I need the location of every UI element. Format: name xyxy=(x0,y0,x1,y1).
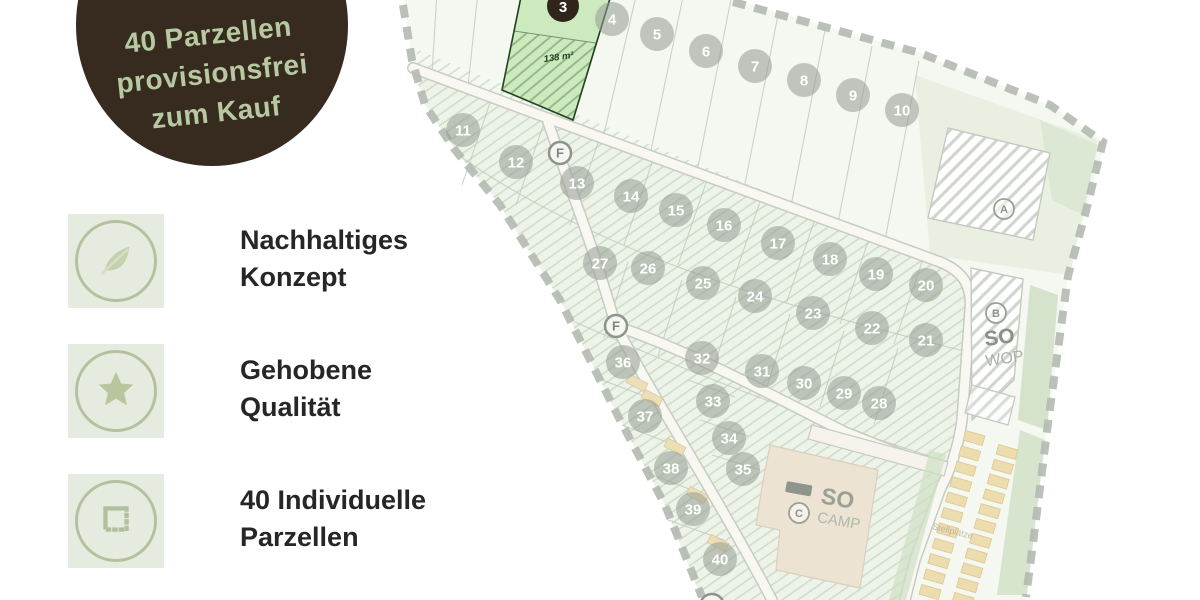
parcel-number[interactable]: 18 xyxy=(813,242,847,276)
parcel-number[interactable]: 29 xyxy=(827,376,861,410)
svg-text:36: 36 xyxy=(615,355,632,372)
svg-text:29: 29 xyxy=(836,386,853,403)
parcel-number[interactable]: 21 xyxy=(909,323,943,357)
parcel-number[interactable]: 35 xyxy=(726,452,760,486)
svg-text:SO: SO xyxy=(983,324,1016,351)
svg-text:13: 13 xyxy=(569,176,586,193)
svg-text:34: 34 xyxy=(721,431,738,448)
zone-marker-B: B xyxy=(986,303,1006,323)
svg-text:9: 9 xyxy=(849,88,857,105)
feature-label-line: Nachhaltiges xyxy=(240,222,408,259)
svg-text:F: F xyxy=(556,146,564,161)
svg-text:30: 30 xyxy=(796,376,813,393)
parcel-number[interactable]: 13 xyxy=(560,166,594,200)
parcel-number[interactable]: 33 xyxy=(696,384,730,418)
svg-text:19: 19 xyxy=(868,267,885,284)
svg-text:C: C xyxy=(795,508,803,520)
svg-text:21: 21 xyxy=(918,333,935,350)
svg-text:39: 39 xyxy=(685,502,702,519)
parcel-number[interactable]: 26 xyxy=(631,251,665,285)
svg-text:28: 28 xyxy=(871,396,888,413)
parcel-number[interactable]: 17 xyxy=(761,226,795,260)
parcel-number[interactable]: 5 xyxy=(640,17,674,51)
svg-text:20: 20 xyxy=(918,278,935,295)
svg-text:32: 32 xyxy=(694,351,711,368)
parcel-number[interactable]: 37 xyxy=(628,399,662,433)
parcel-number[interactable]: 38 xyxy=(654,451,688,485)
svg-text:26: 26 xyxy=(640,261,657,278)
svg-text:25: 25 xyxy=(695,276,712,293)
svg-text:38: 38 xyxy=(663,461,680,478)
parcel-number[interactable]: 14 xyxy=(614,179,648,213)
parcel-outline-icon xyxy=(93,496,139,547)
svg-text:5: 5 xyxy=(653,27,661,44)
feature-label-line: Gehobene xyxy=(240,352,372,389)
svg-text:37: 37 xyxy=(637,409,654,426)
parcel-number[interactable]: 22 xyxy=(855,311,889,345)
svg-text:4: 4 xyxy=(608,12,617,29)
parcel-number[interactable]: 30 xyxy=(787,366,821,400)
feature-label-line: Konzept xyxy=(240,259,408,296)
parcel-number[interactable]: 6 xyxy=(689,34,723,68)
parcel-number[interactable]: 8 xyxy=(787,63,821,97)
svg-text:24: 24 xyxy=(747,289,764,306)
svg-text:11: 11 xyxy=(455,123,471,140)
leaf-icon xyxy=(93,236,139,287)
parcel-number[interactable]: 40 xyxy=(703,542,737,576)
svg-text:A: A xyxy=(1000,204,1008,216)
svg-text:14: 14 xyxy=(623,189,640,206)
svg-text:23: 23 xyxy=(805,306,822,323)
zone-marker-A: A xyxy=(994,199,1014,219)
feature-label-line: Qualität xyxy=(240,389,372,426)
parcel-number[interactable]: 39 xyxy=(676,492,710,526)
parcel-number[interactable]: 16 xyxy=(707,208,741,242)
svg-text:15: 15 xyxy=(668,203,685,220)
parcel-number[interactable]: 34 xyxy=(712,421,746,455)
feature-label-line: 40 Individuelle xyxy=(240,482,426,519)
svg-text:F: F xyxy=(612,319,620,334)
parcel-number[interactable]: 7 xyxy=(738,49,772,83)
parcel-number[interactable]: 10 xyxy=(885,93,919,127)
svg-text:17: 17 xyxy=(770,236,787,253)
svg-text:22: 22 xyxy=(864,321,881,338)
parcel-number[interactable]: 23 xyxy=(796,296,830,330)
star-icon xyxy=(93,366,139,417)
parcel-number[interactable]: 19 xyxy=(859,257,893,291)
feature-sustainability: Nachhaltiges Konzept xyxy=(68,214,408,308)
parcel-number[interactable]: 20 xyxy=(909,268,943,302)
svg-text:12: 12 xyxy=(508,155,525,172)
svg-text:31: 31 xyxy=(754,364,771,381)
svg-text:6: 6 xyxy=(702,44,710,61)
highlighted-parcel-number: 3 xyxy=(559,0,567,16)
zone-marker-C: C xyxy=(789,503,809,523)
svg-text:7: 7 xyxy=(751,59,759,76)
svg-text:16: 16 xyxy=(716,218,733,235)
parcel-number[interactable]: 31 xyxy=(745,354,779,388)
parcel-number[interactable]: 32 xyxy=(685,341,719,375)
svg-text:33: 33 xyxy=(705,394,722,411)
parcel-number[interactable]: 36 xyxy=(606,345,640,379)
feature-parcels: 40 Individuelle Parzellen xyxy=(68,474,426,568)
feature-quality: Gehobene Qualität xyxy=(68,344,372,438)
parcel-number[interactable]: 24 xyxy=(738,279,772,313)
svg-text:35: 35 xyxy=(735,462,752,479)
parcel-number[interactable]: 9 xyxy=(836,78,870,112)
svg-text:8: 8 xyxy=(800,73,808,90)
parcel-number[interactable]: 27 xyxy=(583,246,617,280)
svg-text:40: 40 xyxy=(712,552,729,569)
hero-banner: 3 138 m² SO WOP SO CAMP Stellplätze FFAB… xyxy=(0,0,1200,600)
svg-text:10: 10 xyxy=(894,103,911,120)
parcel-number[interactable]: 28 xyxy=(862,386,896,420)
feature-label-line: Parzellen xyxy=(240,519,426,556)
svg-text:18: 18 xyxy=(822,252,839,269)
road-marker-F: F xyxy=(605,315,627,337)
parcel-number[interactable]: 4 xyxy=(595,2,629,36)
svg-text:B: B xyxy=(992,308,1000,320)
parcel-number[interactable]: 25 xyxy=(686,266,720,300)
parcel-number[interactable]: 11 xyxy=(446,113,480,147)
road-marker-F: F xyxy=(549,142,571,164)
parcel-number[interactable]: 15 xyxy=(659,193,693,227)
svg-text:27: 27 xyxy=(592,256,609,273)
parcel-number[interactable]: 12 xyxy=(499,145,533,179)
